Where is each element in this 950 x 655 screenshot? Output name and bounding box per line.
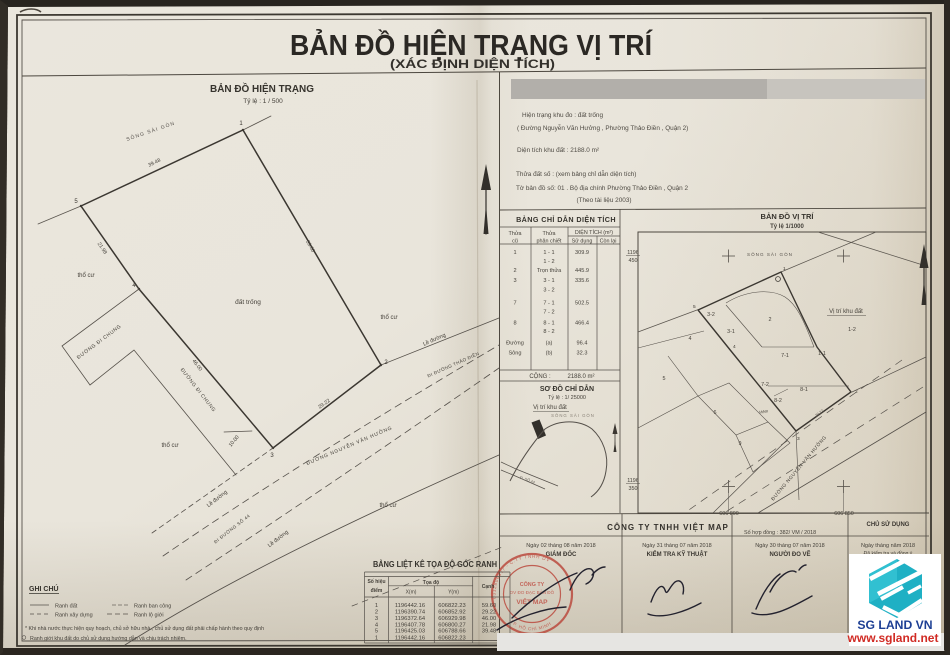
svg-text:5: 5 (375, 629, 378, 635)
svg-text:Ngày 02 tháng 08 năm 2018: Ngày 02 tháng 08 năm 2018 (526, 543, 595, 549)
svg-text:Thửa đất số : (xem bảng chỉ d: Thửa đất số : (xem bảng chỉ dẫn diện tíc… (516, 169, 636, 178)
svg-text:Số hợp đồng : 382/ VM / 2018: Số hợp đồng : 382/ VM / 2018 (744, 530, 816, 536)
svg-text:1196390.74: 1196390.74 (395, 610, 426, 616)
svg-text:CỘNG :: CỘNG : (529, 373, 551, 380)
svg-text:Ngày tháng năm 2018: Ngày tháng năm 2018 (861, 543, 915, 549)
svg-text:96.4: 96.4 (577, 341, 588, 347)
svg-text:DIỆN TÍCH (m²): DIỆN TÍCH (m²) (575, 228, 613, 236)
svg-text:DV ĐO ĐẠC BẢN ĐỒ: DV ĐO ĐẠC BẢN ĐỒ (510, 589, 555, 595)
svg-text:Ranh đất: Ranh đất (55, 604, 78, 610)
svg-text:điểm: điểm (371, 587, 383, 594)
svg-text:2: 2 (769, 317, 772, 323)
svg-text:Vị trí khu đất: Vị trí khu đất (533, 405, 567, 411)
svg-text:606800.27: 606800.27 (438, 622, 465, 628)
svg-text:X(m): X(m) (406, 590, 417, 596)
svg-text:(XÁC ĐỊNH DIỆN TÍCH): (XÁC ĐỊNH DIỆN TÍCH) (390, 58, 555, 71)
svg-text:1: 1 (375, 636, 378, 642)
svg-text:Trọn thửa: Trọn thửa (537, 267, 562, 274)
svg-text:7 - 1: 7 - 1 (543, 301, 554, 307)
svg-text:309.9: 309.9 (575, 250, 589, 256)
svg-text:BẢNG LIỆT KÊ TỌA ĐỘ GÓC RANH: BẢNG LIỆT KÊ TỌA ĐỘ GÓC RANH (373, 558, 497, 569)
svg-text:Số hiệu: Số hiệu (367, 578, 385, 585)
svg-text:1196442.16: 1196442.16 (395, 603, 425, 609)
svg-text:5: 5 (693, 304, 696, 310)
svg-text:đất trống: đất trống (235, 297, 261, 306)
svg-text:606788.66: 606788.66 (438, 629, 465, 635)
svg-text:VIỆT MAP: VIỆT MAP (516, 597, 548, 606)
svg-text:6: 6 (714, 410, 717, 416)
svg-text:NGƯỜI ĐO VẼ: NGƯỜI ĐO VẼ (769, 550, 810, 558)
svg-text:606 850: 606 850 (834, 511, 854, 517)
svg-text:www.sgland.net: www.sgland.net (847, 631, 939, 645)
svg-text:Đường: Đường (506, 341, 524, 347)
svg-text:1-1: 1-1 (818, 351, 826, 357)
svg-text:1196442.16: 1196442.16 (395, 636, 425, 642)
svg-text:502.5: 502.5 (575, 301, 589, 307)
svg-text:8: 8 (513, 321, 516, 327)
svg-text:29.22: 29.22 (482, 610, 497, 616)
svg-text:cũ: cũ (512, 239, 518, 245)
svg-text:1 - 2: 1 - 2 (543, 259, 554, 265)
svg-text:9: 9 (739, 441, 742, 447)
svg-text:Thửa: Thửa (543, 230, 556, 237)
svg-text:3-2: 3-2 (707, 312, 715, 318)
svg-text:1196425.03: 1196425.03 (395, 629, 425, 635)
svg-text:350: 350 (629, 486, 638, 492)
svg-text:(Theo tài liệu 2003): (Theo tài liệu 2003) (576, 197, 631, 204)
svg-text:1196: 1196 (627, 478, 639, 484)
svg-text:7-2: 7-2 (761, 382, 769, 388)
svg-text:CHỦ SỬ DỤNG: CHỦ SỬ DỤNG (867, 521, 910, 528)
svg-text:32.3: 32.3 (577, 351, 588, 357)
svg-text:1: 1 (375, 603, 378, 609)
svg-text:CÔNG TY: CÔNG TY (520, 580, 545, 588)
svg-text:Thửa: Thửa (509, 230, 522, 237)
svg-text:Ngày 31 tháng 07 năm 2018: Ngày 31 tháng 07 năm 2018 (642, 543, 711, 549)
svg-text:phân chiết: phân chiết (537, 239, 562, 245)
svg-text:46.00: 46.00 (482, 616, 497, 622)
svg-text:7-1: 7-1 (781, 353, 789, 359)
svg-text:Sông: Sông (508, 351, 521, 357)
svg-text:* Khi nhà nước thực hiện quy h: * Khi nhà nước thực hiện quy hoạch, chủ … (25, 625, 264, 632)
svg-text:1: 1 (513, 250, 516, 256)
svg-text:7 - 2: 7 - 2 (543, 310, 554, 316)
svg-text:3: 3 (797, 436, 800, 442)
svg-text:8 - 2: 8 - 2 (543, 329, 554, 335)
svg-text:606852.92: 606852.92 (438, 610, 465, 616)
svg-text:Tỷ lệ : 1 / 500: Tỷ lệ : 1 / 500 (243, 98, 283, 105)
svg-text:BẢN ĐỒ HIỆN TRẠNG: BẢN ĐỒ HIỆN TRẠNG (210, 82, 314, 95)
svg-text:3-1: 3-1 (727, 329, 735, 335)
svg-text:(a): (a) (546, 341, 553, 347)
svg-text:8-2: 8-2 (774, 398, 782, 404)
svg-text:Còn lại: Còn lại (600, 239, 617, 245)
svg-text:thổ cư: thổ cư (161, 442, 178, 449)
svg-text:Tọa độ: Tọa độ (423, 580, 439, 586)
svg-text:thổ cư: thổ cư (380, 314, 397, 321)
svg-text:2: 2 (513, 268, 516, 274)
svg-text:KIỂM TRA KỸ THUẬT: KIỂM TRA KỸ THUẬT (647, 551, 708, 558)
svg-text:( Đường Nguyễn Văn Hưởng , Phư: ( Đường Nguyễn Văn Hưởng , Phường Thảo Đ… (517, 123, 688, 132)
svg-text:Tỷ lệ 1/1000: Tỷ lệ 1/1000 (770, 224, 804, 230)
svg-text:59.60: 59.60 (482, 603, 497, 609)
svg-text:Tỷ lệ : 1/ 25000: Tỷ lệ : 1/ 25000 (548, 394, 586, 401)
svg-text:5: 5 (663, 376, 666, 382)
svg-text:3: 3 (375, 616, 378, 622)
svg-text:606822.23: 606822.23 (438, 636, 465, 642)
svg-text:3 - 1: 3 - 1 (543, 278, 554, 284)
svg-text:thổ cư: thổ cư (77, 272, 94, 279)
svg-text:Ranh lộ giới: Ranh lộ giới (134, 613, 164, 619)
svg-text:466.4: 466.4 (575, 321, 589, 327)
svg-text:Ranh giới khu đất do chủ sử dụ: Ranh giới khu đất do chủ sử dụng hướng d… (30, 635, 187, 642)
svg-text:Diện tích khu đất : 2188.0 m²: Diện tích khu đất : 2188.0 m² (517, 145, 599, 154)
svg-text:1196372.64: 1196372.64 (395, 616, 426, 622)
svg-text:Y(m): Y(m) (448, 590, 459, 596)
svg-text:CÔNG TY TNHH VIỆT MAP: CÔNG TY TNHH VIỆT MAP (607, 523, 729, 532)
svg-text:1196407.78: 1196407.78 (395, 622, 425, 628)
svg-text:606929.98: 606929.98 (438, 616, 465, 622)
svg-text:1-2: 1-2 (848, 327, 856, 333)
svg-text:BẢN ĐỒ VỊ TRÍ: BẢN ĐỒ VỊ TRÍ (761, 211, 815, 221)
svg-text:3 - 2: 3 - 2 (543, 288, 554, 294)
svg-text:7: 7 (513, 301, 516, 307)
svg-text:450: 450 (629, 258, 638, 264)
svg-text:GHI CHÚ: GHI CHÚ (29, 584, 59, 593)
svg-text:BẢNG CHỈ DẪN DIỆN TÍCH: BẢNG CHỈ DẪN DIỆN TÍCH (516, 215, 616, 224)
svg-text:Cạnh: Cạnh (482, 584, 495, 590)
svg-text:4: 4 (733, 344, 736, 350)
svg-text:(b): (b) (546, 351, 553, 357)
svg-text:Ranh ban công: Ranh ban công (134, 604, 171, 610)
svg-text:3: 3 (513, 278, 516, 284)
svg-text:21.98: 21.98 (482, 622, 497, 628)
svg-text:2188.0 m²: 2188.0 m² (567, 374, 594, 380)
svg-text:1: 1 (783, 266, 786, 272)
svg-text:SÔNG SÀI GÒN: SÔNG SÀI GÒN (551, 413, 595, 418)
svg-text:1196: 1196 (627, 250, 639, 256)
svg-text:Ngày 30 tháng 07 năm 2018: Ngày 30 tháng 07 năm 2018 (755, 543, 824, 549)
svg-text:8-1: 8-1 (800, 387, 808, 393)
svg-text:606822.23: 606822.23 (438, 603, 465, 609)
svg-text:Vị trí khu đất: Vị trí khu đất (829, 309, 863, 315)
svg-text:Sử dụng: Sử dụng (572, 238, 593, 245)
svg-text:2: 2 (375, 610, 378, 616)
svg-text:BẢN ĐỒ HIỆN TRẠNG VỊ TRÍ: BẢN ĐỒ HIỆN TRẠNG VỊ TRÍ (290, 28, 653, 62)
svg-text:Ranh xây dựng: Ranh xây dựng (55, 613, 93, 619)
svg-text:8 - 1: 8 - 1 (543, 321, 554, 327)
svg-text:39.48: 39.48 (482, 629, 497, 635)
svg-text:4: 4 (689, 336, 692, 342)
svg-text:445.9: 445.9 (575, 268, 589, 274)
svg-text:SÔNG SÀI GÒN: SÔNG SÀI GÒN (747, 251, 793, 257)
svg-text:GIÁM ĐỐC: GIÁM ĐỐC (546, 551, 577, 558)
svg-text:1 - 1: 1 - 1 (543, 250, 554, 256)
svg-text:SG LAND VN: SG LAND VN (857, 618, 932, 632)
svg-text:Tờ bản đồ số: 01 . Bộ địa chín: Tờ bản đồ số: 01 . Bộ địa chính Phường T… (516, 183, 689, 192)
svg-text:606 800: 606 800 (719, 511, 739, 517)
svg-text:335.6: 335.6 (575, 278, 589, 284)
svg-text:Hiện trạng khu đo : đất trống: Hiện trạng khu đo : đất trống (522, 110, 603, 119)
